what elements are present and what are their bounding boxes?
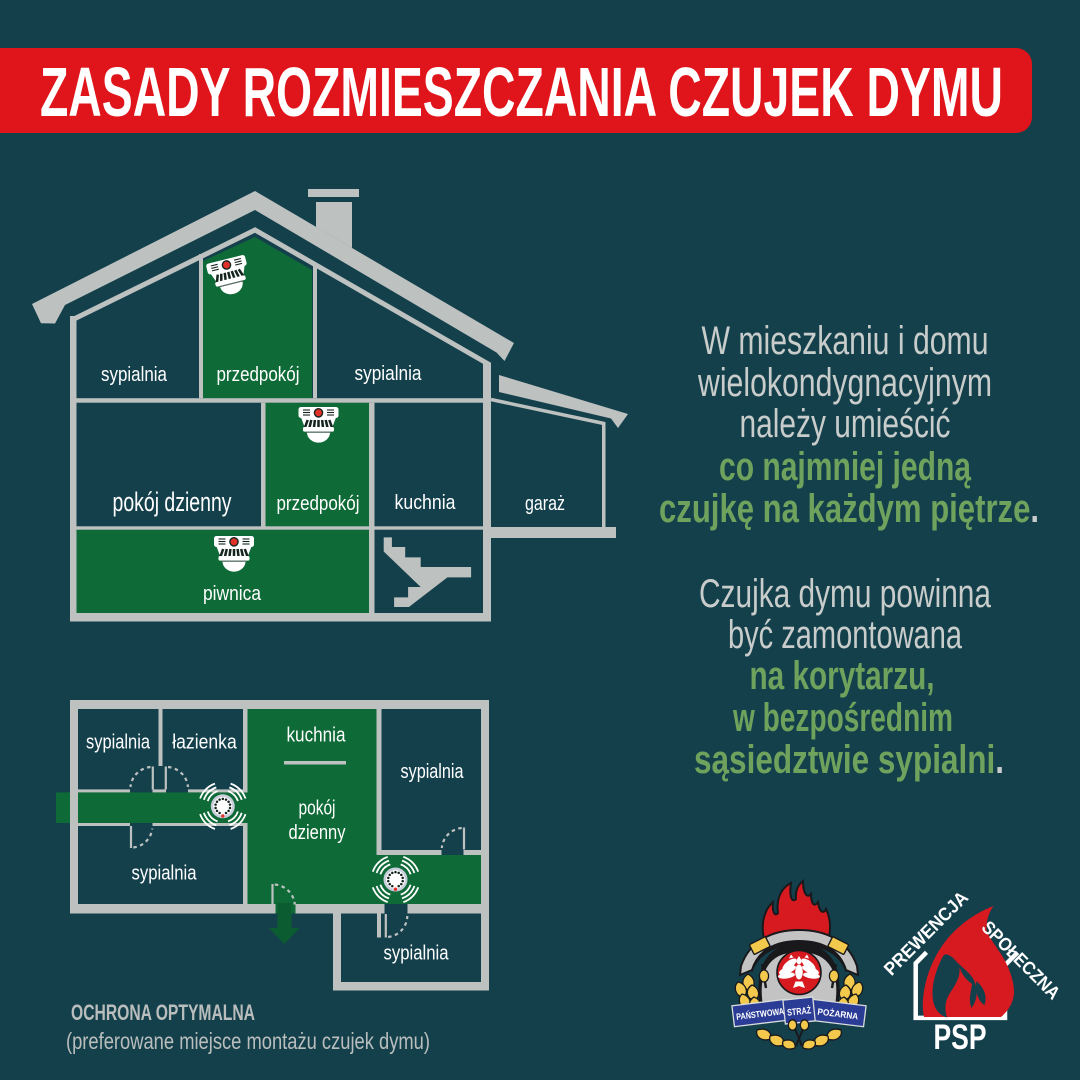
svg-text:kuchnia: kuchnia bbox=[287, 725, 347, 747]
svg-text:PSP: PSP bbox=[934, 1018, 987, 1057]
svg-text:sypialnia: sypialnia bbox=[101, 363, 167, 386]
svg-text:w bezpośrednim: w bezpośrednim bbox=[732, 696, 953, 740]
svg-text:sypialnia: sypialnia bbox=[355, 362, 422, 385]
svg-text:przedpokój: przedpokój bbox=[277, 492, 360, 515]
svg-text:W mieszkaniu i domu: W mieszkaniu i domu bbox=[702, 319, 989, 363]
svg-text:sąsiedztwie sypialni.: sąsiedztwie sypialni. bbox=[694, 738, 1004, 782]
svg-text:kuchnia: kuchnia bbox=[395, 491, 457, 514]
svg-text:wielokondygnacyjnym: wielokondygnacyjnym bbox=[697, 361, 992, 405]
svg-text:ZASADY ROZMIESZCZANIA CZUJEK D: ZASADY ROZMIESZCZANIA CZUJEK DYMU bbox=[40, 53, 1003, 131]
svg-text:garaż: garaż bbox=[525, 492, 565, 515]
svg-text:OCHRONA OPTYMALNA: OCHRONA OPTYMALNA bbox=[71, 1000, 255, 1025]
svg-text:co najmniej jedną: co najmniej jedną bbox=[719, 445, 972, 489]
svg-text:sypialnia: sypialnia bbox=[401, 761, 465, 783]
svg-text:sypialnia: sypialnia bbox=[384, 943, 450, 965]
svg-text:należy umieścić: należy umieścić bbox=[740, 402, 951, 446]
svg-text:pokój: pokój bbox=[299, 798, 336, 820]
svg-text:na korytarzu,: na korytarzu, bbox=[750, 654, 935, 698]
svg-text:czujkę na każdym piętrze.: czujkę na każdym piętrze. bbox=[659, 487, 1039, 531]
svg-text:być zamontowana: być zamontowana bbox=[728, 613, 963, 657]
svg-text:łazienka: łazienka bbox=[172, 732, 237, 754]
svg-text:przedpokój: przedpokój bbox=[217, 363, 300, 386]
svg-text:piwnica: piwnica bbox=[203, 582, 262, 605]
svg-text:(preferowane miejsce montażu c: (preferowane miejsce montażu czujek dymu… bbox=[66, 1028, 430, 1054]
svg-text:pokój dzienny: pokój dzienny bbox=[113, 487, 233, 517]
svg-text:sypialnia: sypialnia bbox=[86, 732, 151, 754]
svg-text:sypialnia: sypialnia bbox=[132, 863, 198, 885]
svg-text:Czujka dymu powinna: Czujka dymu powinna bbox=[699, 572, 992, 616]
svg-text:dzienny: dzienny bbox=[289, 822, 346, 844]
